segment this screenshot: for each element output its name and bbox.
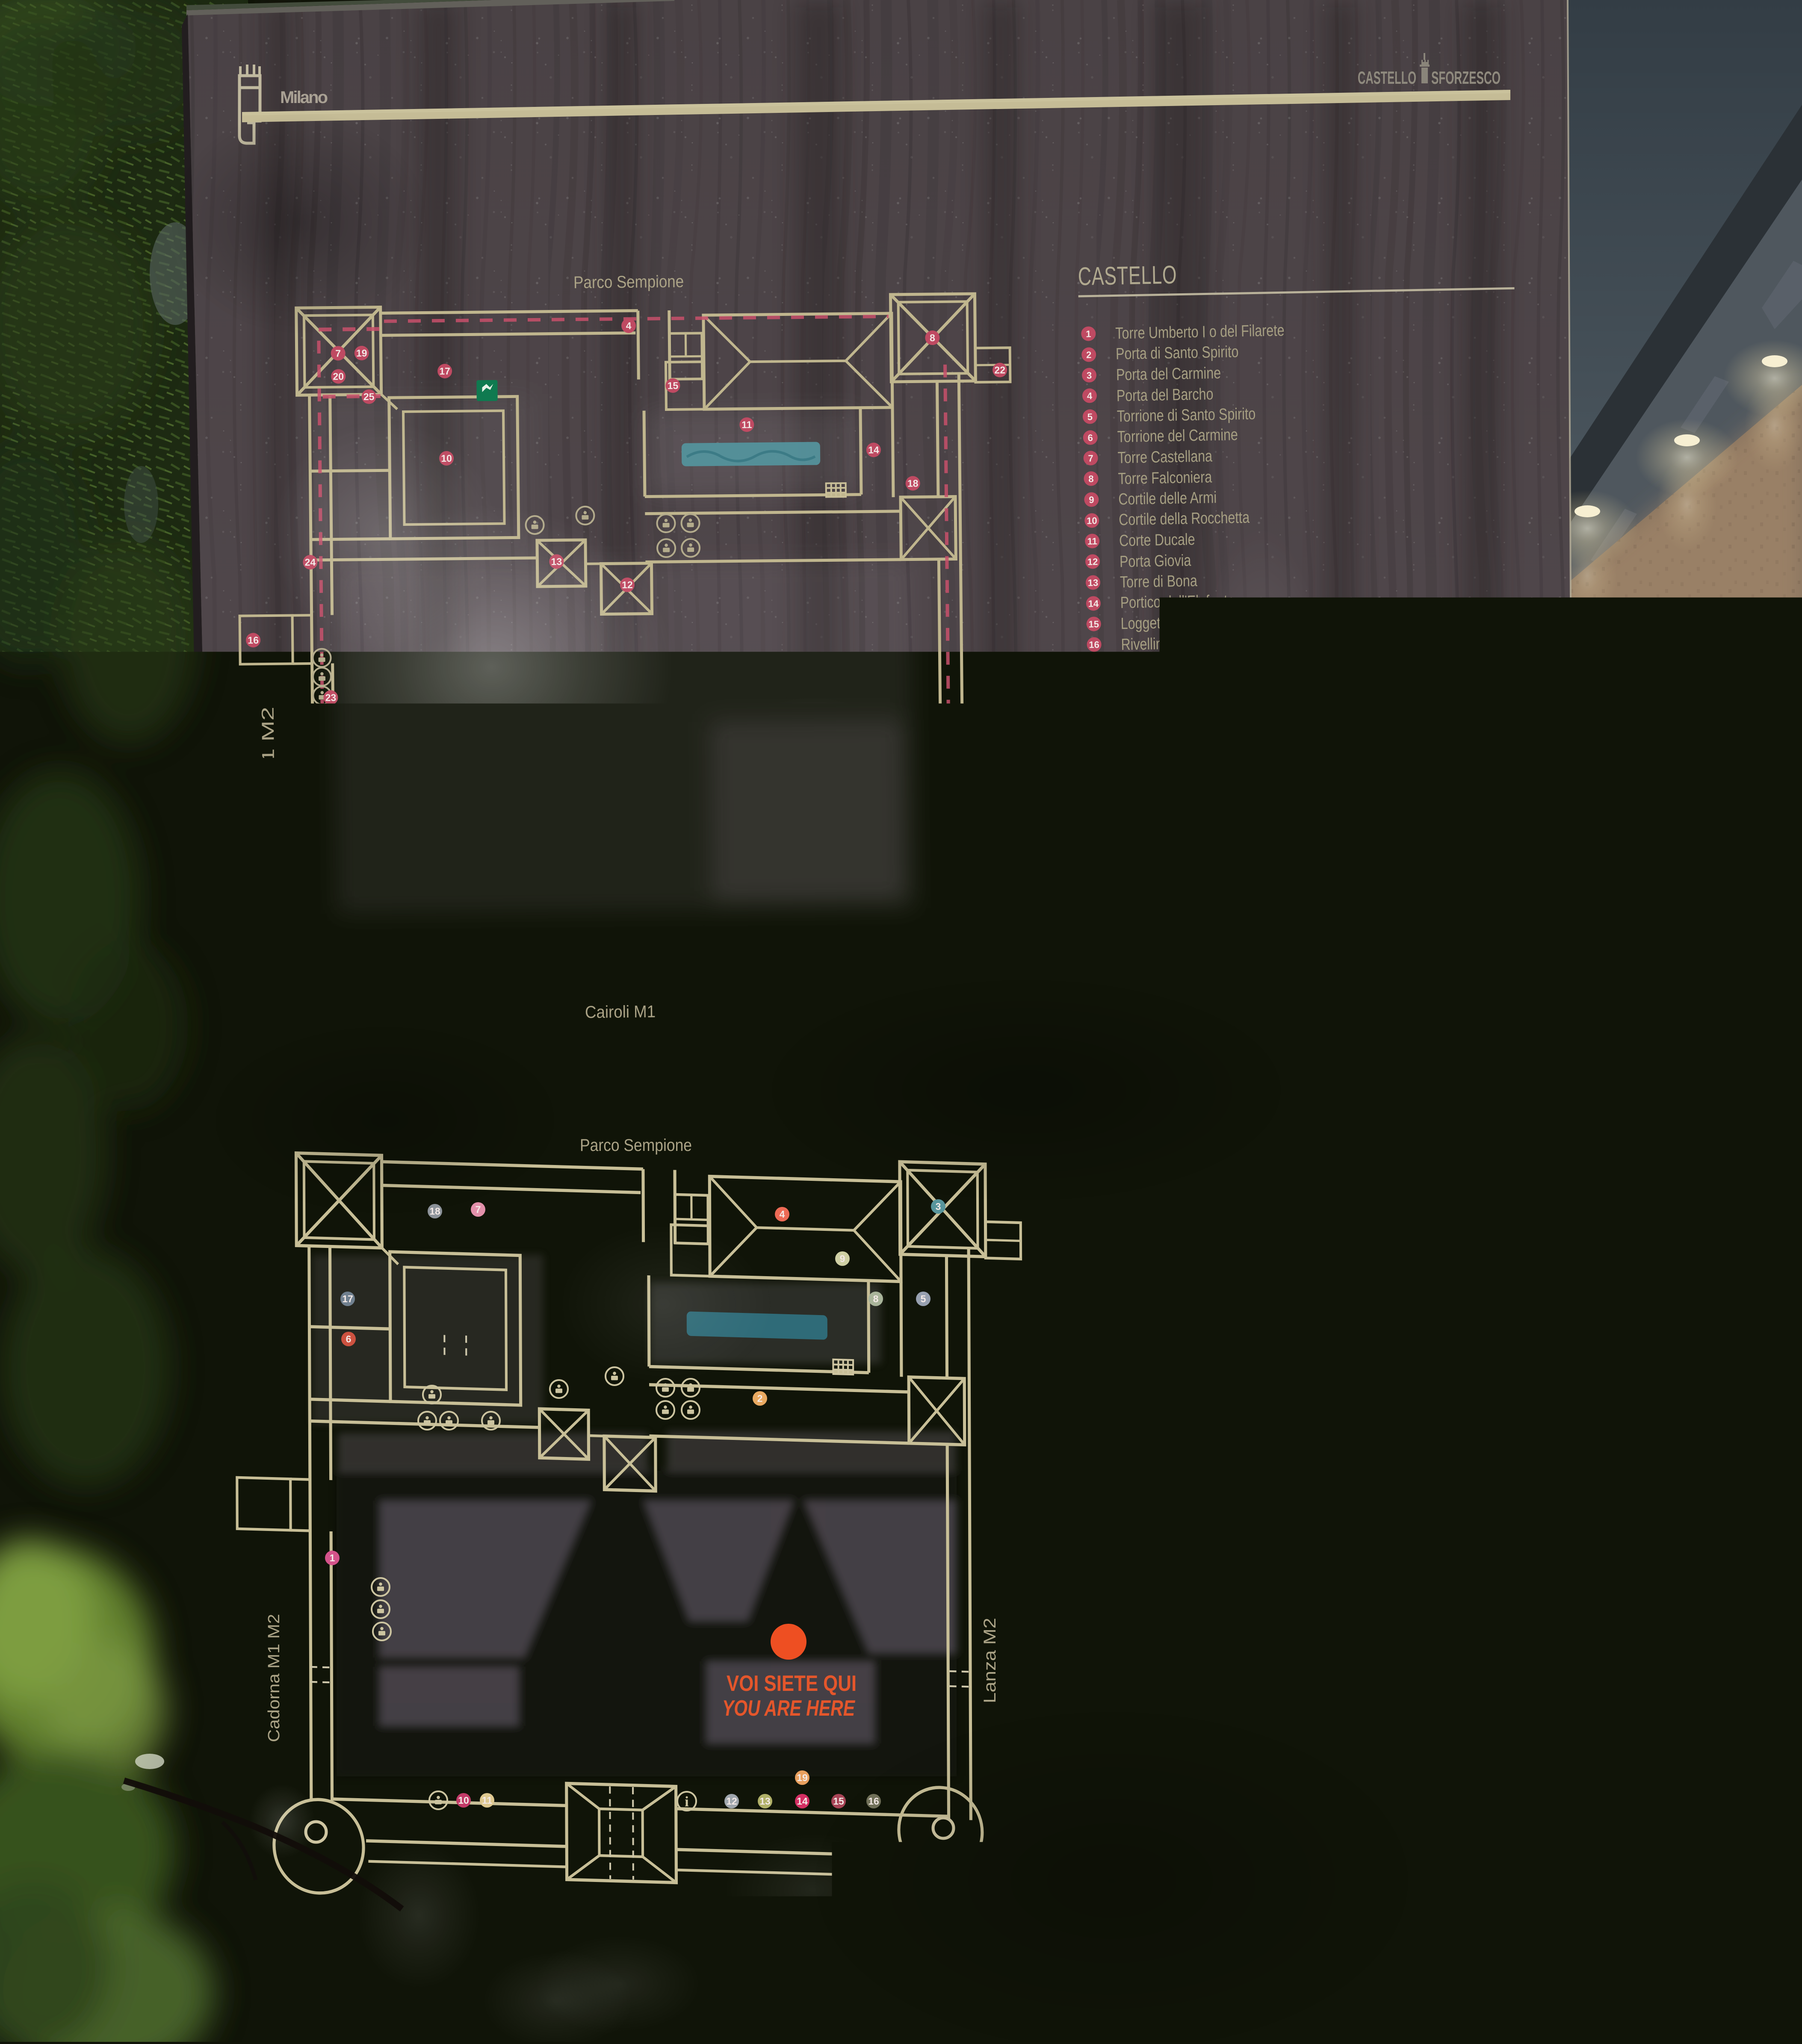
svg-text:Porta del Carmine: Porta del Carmine xyxy=(1116,364,1221,384)
svg-text:SFORZESCO: SFORZESCO xyxy=(1431,68,1501,88)
svg-text:2: 2 xyxy=(1086,349,1092,360)
svg-text:1: 1 xyxy=(1086,328,1091,339)
svg-text:6: 6 xyxy=(346,1333,352,1345)
svg-text:9: 9 xyxy=(1093,1515,1099,1525)
svg-text:12: 12 xyxy=(1093,1634,1103,1645)
svg-text:20: 20 xyxy=(1090,722,1101,733)
svg-text:6: 6 xyxy=(1087,432,1093,443)
svg-text:Museum of Decorative Arts: Museum of Decorative Arts xyxy=(1120,1405,1273,1425)
svg-text:19: 19 xyxy=(1090,702,1101,712)
svg-text:11: 11 xyxy=(741,419,752,430)
svg-text:i: i xyxy=(689,928,694,944)
svg-text:11: 11 xyxy=(1087,536,1097,546)
svg-text:17: 17 xyxy=(1089,660,1100,671)
svg-text:4: 4 xyxy=(1090,1315,1095,1326)
svg-text:25: 25 xyxy=(363,391,375,402)
svg-text:3: 3 xyxy=(1087,370,1092,380)
svg-text:2: 2 xyxy=(329,790,334,802)
svg-text:Cortile delle Armi: Cortile delle Armi xyxy=(1118,489,1217,508)
svg-text:21: 21 xyxy=(330,847,341,858)
svg-text:4: 4 xyxy=(626,320,632,331)
svg-text:15: 15 xyxy=(1088,619,1099,629)
svg-text:5: 5 xyxy=(921,1293,926,1304)
svg-text:5: 5 xyxy=(1090,1355,1096,1366)
svg-text:Picture Gallery: Picture Gallery xyxy=(1120,1367,1204,1386)
svg-text:Torre Falconiera: Torre Falconiera xyxy=(1118,468,1212,488)
svg-text:Cadorna M1 M2: Cadorna M1 M2 xyxy=(265,1614,283,1742)
svg-text:Torrione di Santo Spirito: Torrione di Santo Spirito xyxy=(1117,405,1255,425)
svg-text:12: 12 xyxy=(726,1796,737,1807)
svg-text:Porta del Barcho: Porta del Barcho xyxy=(1117,385,1214,405)
svg-text:3: 3 xyxy=(948,785,954,796)
svg-text:8: 8 xyxy=(873,1293,879,1304)
svg-text:Ponticella: Ponticella xyxy=(1123,759,1180,778)
svg-text:Torrione del Carmine: Torrione del Carmine xyxy=(1117,426,1238,446)
svg-text:Torre Umberto I o del Filarete: Torre Umberto I o del Filarete xyxy=(1115,321,1285,342)
svg-text:19: 19 xyxy=(797,1772,808,1783)
svg-text:YOU ARE HERE: YOU ARE HERE xyxy=(722,1696,855,1721)
svg-text:8: 8 xyxy=(930,332,935,343)
svg-text:Lanza M2: Lanza M2 xyxy=(981,1618,999,1703)
svg-text:17: 17 xyxy=(342,1293,353,1304)
svg-text:i: i xyxy=(685,1794,688,1810)
svg-text:9: 9 xyxy=(840,1253,845,1264)
svg-text:Merlate: Merlate xyxy=(1124,821,1168,840)
svg-text:Cadorna M1 M2: Cadorna M1 M2 xyxy=(259,707,279,886)
svg-text:19: 19 xyxy=(356,348,367,359)
svg-text:6: 6 xyxy=(938,941,943,952)
svg-text:Info point: Info point xyxy=(1125,862,1179,881)
svg-text:5: 5 xyxy=(1087,411,1093,422)
svg-text:7: 7 xyxy=(1092,1435,1097,1446)
svg-text:Photographic Archive: Photographic Archive xyxy=(1124,1605,1244,1625)
svg-text:5: 5 xyxy=(319,958,325,969)
svg-text:1: 1 xyxy=(330,1552,335,1563)
svg-text:9: 9 xyxy=(1089,494,1094,505)
svg-text:Drawings Collection: Drawings Collection xyxy=(1125,1645,1237,1665)
svg-text:8: 8 xyxy=(1093,1475,1098,1486)
svg-text:4: 4 xyxy=(780,1209,785,1220)
svg-text:18: 18 xyxy=(1090,681,1100,692)
svg-text:12: 12 xyxy=(1087,556,1098,567)
svg-text:2: 2 xyxy=(757,1393,763,1404)
svg-text:Porta Giovia: Porta Giovia xyxy=(1120,552,1192,571)
svg-text:26: 26 xyxy=(682,891,693,903)
svg-text:24: 24 xyxy=(1092,805,1103,816)
svg-text:13: 13 xyxy=(1088,577,1099,588)
svg-text:Biglietteria: Biglietteria xyxy=(1126,901,1187,920)
svg-text:Porta di Santo Spirito: Porta di Santo Spirito xyxy=(1116,343,1239,363)
svg-text:3: 3 xyxy=(936,1201,941,1212)
svg-text:2: 2 xyxy=(1088,1236,1093,1246)
svg-text:Milano: Milano xyxy=(280,88,328,107)
svg-text:13: 13 xyxy=(759,1796,771,1807)
svg-text:Torre Castellana: Torre Castellana xyxy=(1117,447,1213,467)
svg-text:6: 6 xyxy=(1091,1395,1096,1406)
svg-text:10: 10 xyxy=(1091,1555,1102,1566)
svg-text:14: 14 xyxy=(868,444,879,455)
svg-text:16: 16 xyxy=(1089,639,1099,650)
svg-text:21: 21 xyxy=(1091,743,1102,754)
svg-text:20: 20 xyxy=(333,371,344,382)
svg-text:7: 7 xyxy=(476,1204,481,1215)
svg-text:25: 25 xyxy=(1092,826,1103,837)
svg-text:Parco Sempione: Parco Sempione xyxy=(580,1136,692,1155)
svg-text:14: 14 xyxy=(797,1796,808,1807)
svg-text:3: 3 xyxy=(1089,1276,1094,1286)
svg-text:Lanza M2: Lanza M2 xyxy=(979,752,999,838)
svg-text:Cairoli M1: Cairoli M1 xyxy=(585,1002,656,1022)
svg-text:22: 22 xyxy=(1091,764,1102,775)
svg-text:15: 15 xyxy=(668,380,679,391)
svg-text:Parco Sempione: Parco Sempione xyxy=(573,272,684,292)
svg-text:17: 17 xyxy=(439,366,450,377)
svg-text:15: 15 xyxy=(833,1796,844,1807)
svg-text:14: 14 xyxy=(1088,598,1099,609)
svg-text:i: i xyxy=(1096,865,1100,879)
svg-text:26: 26 xyxy=(1093,847,1103,858)
svg-text:13: 13 xyxy=(1093,1675,1104,1685)
svg-text:VOI SIETE QUI: VOI SIETE QUI xyxy=(727,1671,857,1696)
svg-text:16: 16 xyxy=(248,634,259,646)
svg-text:23: 23 xyxy=(1091,785,1102,795)
svg-text:Pinacoteca: Pinacoteca xyxy=(1120,1351,1182,1370)
svg-text:Torre di Bona: Torre di Bona xyxy=(1120,572,1198,591)
svg-text:CASTELLO: CASTELLO xyxy=(1358,68,1416,88)
svg-text:CASTELLO: CASTELLO xyxy=(1078,261,1177,291)
svg-text:11: 11 xyxy=(482,1795,493,1806)
svg-text:7: 7 xyxy=(1088,453,1093,463)
svg-text:22: 22 xyxy=(994,364,1005,375)
svg-text:10: 10 xyxy=(458,1795,469,1806)
svg-text:Sala delle Asse – Leonardo da: Sala delle Asse – Leonardo da Vinci xyxy=(1118,1285,1322,1306)
svg-text:7: 7 xyxy=(335,348,341,359)
svg-text:Corte Ducale: Corte Ducale xyxy=(1119,531,1195,550)
svg-text:4: 4 xyxy=(1087,390,1093,401)
svg-text:10: 10 xyxy=(1087,515,1097,526)
svg-text:Cortile della Rocchetta: Cortile della Rocchetta xyxy=(1119,509,1250,529)
svg-text:8: 8 xyxy=(1088,473,1094,484)
svg-text:11: 11 xyxy=(1092,1595,1102,1605)
svg-text:18: 18 xyxy=(907,478,919,489)
